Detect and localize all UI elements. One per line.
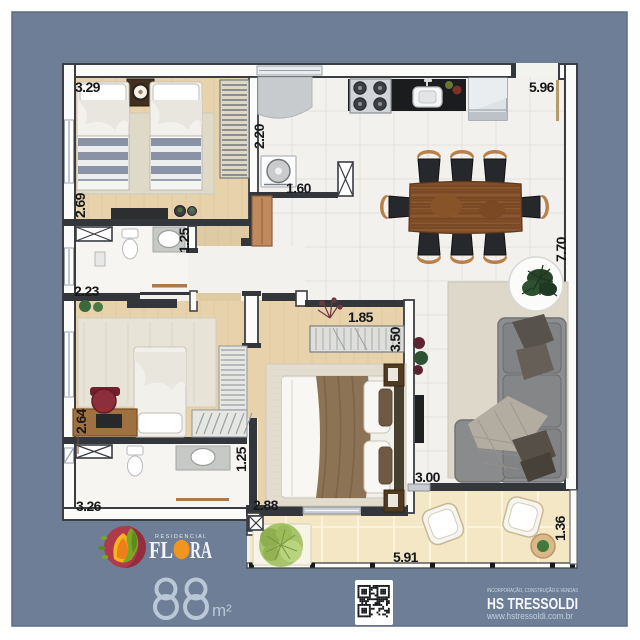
svg-text:3.26: 3.26 (76, 498, 102, 514)
svg-text:RA: RA (190, 538, 212, 564)
svg-text:3.29: 3.29 (75, 79, 101, 95)
svg-text:3.50: 3.50 (387, 326, 403, 352)
svg-text:2.69: 2.69 (72, 192, 88, 218)
svg-text:m²: m² (212, 601, 232, 620)
svg-text:2.88: 2.88 (253, 497, 279, 513)
svg-text:1.25: 1.25 (176, 227, 192, 253)
svg-text:1.36: 1.36 (552, 515, 568, 541)
svg-text:7.70: 7.70 (553, 236, 569, 262)
svg-text:FL: FL (149, 538, 173, 564)
svg-text:5.96: 5.96 (529, 79, 555, 95)
svg-text:5.91: 5.91 (393, 549, 419, 565)
svg-text:2.20: 2.20 (251, 123, 267, 149)
svg-text:www.hstressoldi.com.br: www.hstressoldi.com.br (486, 611, 573, 621)
svg-text:1.60: 1.60 (286, 180, 312, 196)
svg-text:1.25: 1.25 (233, 446, 249, 472)
svg-text:1.85: 1.85 (348, 309, 374, 325)
svg-text:2.64: 2.64 (73, 408, 89, 434)
svg-text:2.23: 2.23 (74, 283, 100, 299)
svg-text:3.00: 3.00 (415, 469, 441, 485)
svg-text:INCORPORAÇÃO, CONSTRUÇÃO E VEN: INCORPORAÇÃO, CONSTRUÇÃO E VENDAS (487, 587, 578, 594)
